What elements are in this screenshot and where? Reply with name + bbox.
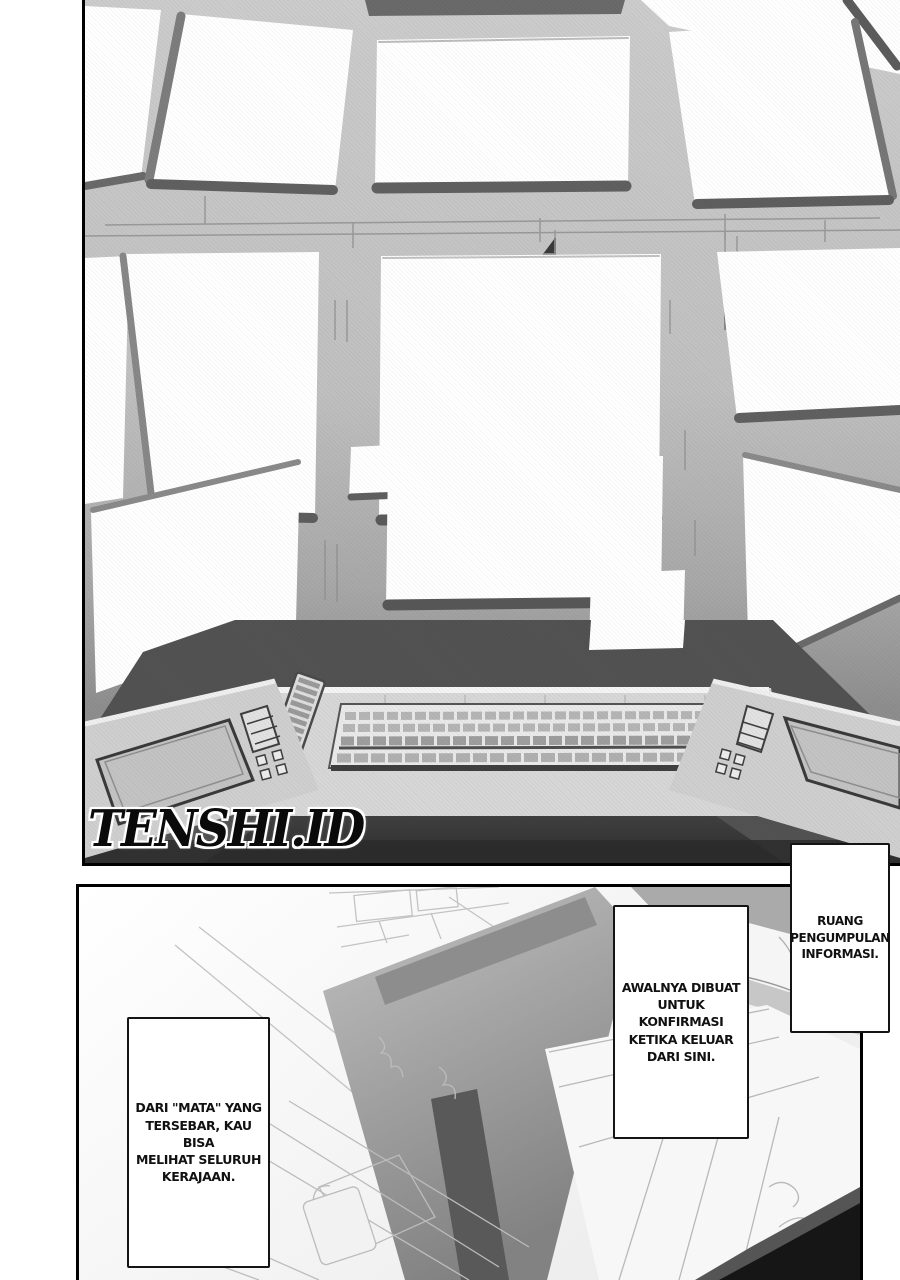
manga-page: { "page": { "watermark": "TENSHI.ID" }, … <box>0 0 900 1280</box>
monitor-screens <box>85 0 900 693</box>
speech-bubble-awalnya: AWALNYA DIBUAT UNTUK KONFIRMASI KETIKA K… <box>613 905 749 1139</box>
watermark-tenshi-id: TENSHI.ID <box>88 804 363 855</box>
speech-bubble-darimata: DARI "MATA" YANG TERSEBAR, KAU BISA MELI… <box>127 1017 270 1268</box>
monitor-room-art <box>85 0 900 863</box>
keyboard <box>329 704 735 768</box>
speech-bubble-ruang: RUANG PENGUMPULAN INFORMASI. <box>790 843 890 1033</box>
panel-monitor-room: TENSHI.ID <box>82 0 900 866</box>
